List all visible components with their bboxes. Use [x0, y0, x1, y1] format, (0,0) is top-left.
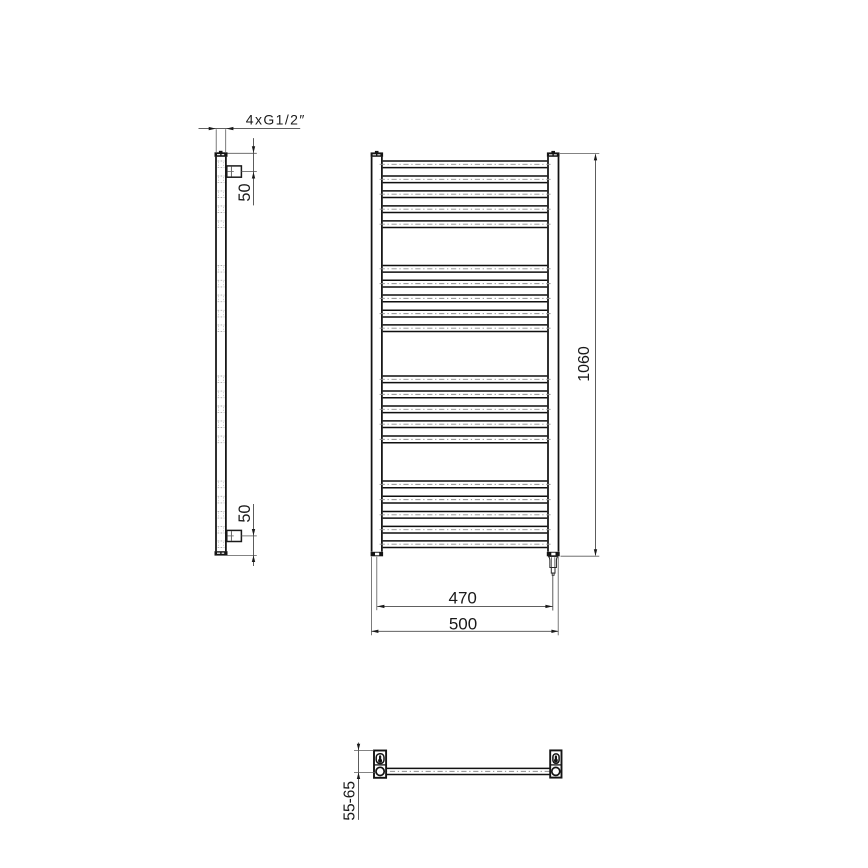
svg-text:470: 470	[449, 589, 477, 608]
svg-text:4xG1/2″: 4xG1/2″	[246, 112, 306, 128]
svg-text:55-65: 55-65	[342, 781, 359, 821]
svg-text:50: 50	[236, 183, 254, 201]
svg-text:500: 500	[449, 614, 477, 633]
svg-text:1060: 1060	[576, 346, 593, 382]
svg-text:50: 50	[236, 505, 254, 523]
